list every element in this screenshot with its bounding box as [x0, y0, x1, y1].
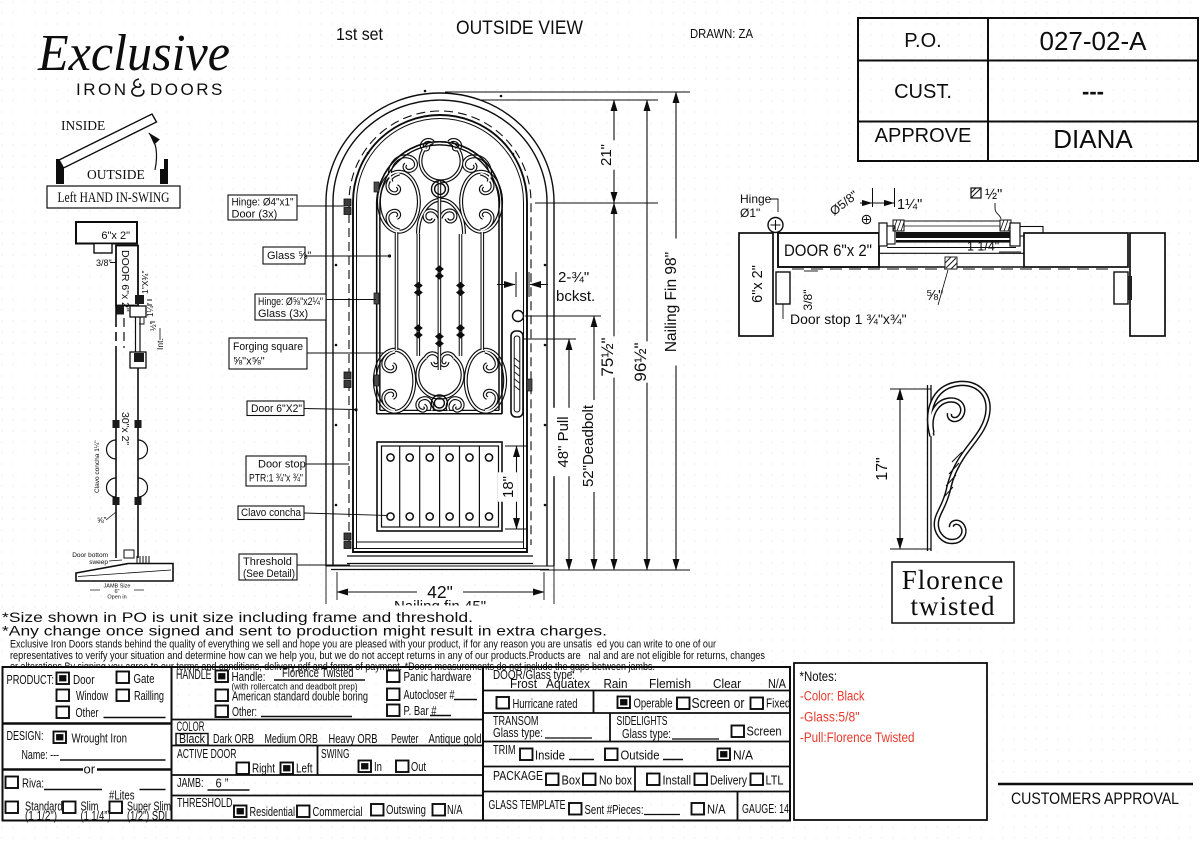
svg-text:Install: Install [663, 774, 692, 788]
svg-text:---: --- [1082, 79, 1104, 104]
svg-text:twisted: twisted [911, 591, 996, 621]
svg-text:Gate: Gate [134, 671, 155, 686]
svg-text:17": 17" [874, 457, 891, 480]
svg-text:INSIDE: INSIDE [61, 118, 105, 133]
svg-text:DOORS: DOORS [150, 80, 225, 99]
svg-text:HANDLE: HANDLE [176, 667, 212, 682]
svg-text:Hurricane rated: Hurricane rated [513, 697, 578, 711]
svg-text:Hinge: Hinge [740, 192, 772, 206]
svg-text:⅝": ⅝" [97, 516, 107, 525]
svg-text:Door stop: Door stop [258, 459, 306, 471]
svg-text:Threshold: Threshold [243, 556, 292, 568]
svg-text:representatives to verify your: representatives to verify your situation… [10, 650, 765, 662]
svg-text:-Glass:5/8": -Glass:5/8" [800, 710, 860, 725]
svg-text:PACKAGE: PACKAGE [493, 769, 543, 783]
svg-text:No box: No box [599, 774, 633, 788]
svg-text:(1 1/4”): (1 1/4”) [81, 808, 111, 823]
svg-text:THRESHOLD: THRESHOLD [177, 795, 233, 810]
svg-text:Door (3x): Door (3x) [232, 209, 278, 221]
svg-text:Door 6"X2": Door 6"X2" [251, 403, 302, 415]
svg-text:N/A: N/A [733, 749, 754, 763]
svg-text:Hinge: Ø4"x1": Hinge: Ø4"x1" [232, 197, 294, 209]
svg-text:Box: Box [562, 774, 582, 788]
svg-text:Heavy ORB: Heavy ORB [329, 732, 378, 746]
svg-text:SIDELIGHTS: SIDELIGHTS [617, 714, 668, 728]
svg-text:TRIM: TRIM [493, 743, 516, 757]
svg-text:Sent #Pieces:: Sent #Pieces: [585, 803, 644, 817]
svg-text:3/8": 3/8" [96, 258, 112, 268]
svg-text:Antique gold: Antique gold [429, 732, 482, 746]
svg-text:⅝"x⅝": ⅝"x⅝" [233, 356, 265, 368]
svg-text:Right: Right [252, 761, 275, 776]
svg-text:-Color: Black: -Color: Black [800, 689, 865, 704]
svg-text:Door: Door [73, 672, 95, 687]
svg-text:Commercial: Commercial [313, 804, 363, 819]
svg-text:OUTSIDE VIEW: OUTSIDE VIEW [456, 17, 584, 39]
svg-text:Dark ORB: Dark ORB [213, 732, 254, 746]
svg-text:52"Deadbolt: 52"Deadbolt [580, 404, 597, 487]
svg-text:IRON: IRON [76, 80, 129, 99]
svg-text:Wrought Iron: Wrought Iron [72, 731, 128, 746]
svg-text:Riva:: Riva: [22, 776, 44, 791]
svg-text:Clavo concha 1¼": Clavo concha 1¼" [94, 440, 101, 493]
svg-text:bckst.: bckst. [556, 288, 595, 305]
svg-text:Black: Black [179, 732, 206, 746]
svg-text:21": 21" [598, 144, 615, 166]
svg-text:½": ½" [149, 321, 158, 331]
svg-text:(See Detail): (See Detail) [243, 568, 295, 580]
svg-text:Nailing Fin 98": Nailing Fin 98" [663, 252, 680, 352]
svg-text:ACTIVE DOOR: ACTIVE DOOR [177, 746, 237, 761]
svg-text:DOOR 6"x 2": DOOR 6"x 2" [119, 250, 131, 312]
svg-text:CUST.: CUST. [894, 81, 952, 103]
svg-text:75½": 75½" [598, 337, 617, 376]
svg-text:Glass ⅝": Glass ⅝" [267, 250, 311, 262]
svg-text:DESIGN:: DESIGN: [7, 728, 44, 743]
svg-text:6"x 2": 6"x 2" [101, 230, 130, 242]
svg-text:Ø1": Ø1" [740, 206, 760, 220]
svg-text:1"X¾": 1"X¾" [140, 270, 150, 294]
svg-text:48" Pull: 48" Pull [555, 416, 572, 467]
svg-text:Other: Other [76, 705, 99, 720]
svg-text:GAUGE: 14: GAUGE: 14 [742, 802, 789, 816]
svg-text:CUSTOMERS APPROVAL: CUSTOMERS APPROVAL [1011, 790, 1179, 808]
svg-text:Delivery: Delivery [710, 774, 748, 788]
svg-text:Name: ---: Name: --- [22, 747, 60, 762]
svg-text:American standard double borin: American standard double boring [232, 690, 368, 704]
svg-text:Window: Window [76, 688, 108, 703]
svg-text:SWING: SWING [321, 746, 350, 761]
svg-text:DIANA: DIANA [1053, 124, 1133, 154]
svg-text:APPROVE: APPROVE [875, 125, 972, 147]
svg-text:OUTSIDE: OUTSIDE [87, 167, 145, 182]
svg-text:(1 1/2”): (1 1/2”) [25, 808, 57, 823]
svg-text:N/A: N/A [768, 677, 787, 691]
svg-text:2-¾": 2-¾" [558, 269, 589, 286]
svg-text:Railling: Railling [134, 688, 164, 703]
svg-text:Door stop 1 ¾"x¾": Door stop 1 ¾"x¾" [790, 311, 907, 327]
svg-text:Hinge: Ø⅝"x2¼": Hinge: Ø⅝"x2¼" [258, 296, 323, 308]
svg-text:Medium ORB: Medium ORB [265, 732, 319, 746]
svg-text:Autocloser #: Autocloser # [404, 688, 455, 702]
svg-text:sweep: sweep [89, 559, 108, 566]
svg-text:Operable: Operable [634, 697, 673, 711]
svg-text:Inside: Inside [535, 749, 565, 763]
svg-text:LTL: LTL [766, 774, 784, 788]
svg-text:*Any change once signed and se: *Any change once signed and sent to prod… [2, 623, 607, 639]
svg-text:Screen: Screen [747, 725, 782, 739]
svg-text:Rain: Rain [604, 677, 628, 691]
svg-text:027-02-A: 027-02-A [1040, 26, 1148, 56]
svg-text:1 1/4": 1 1/4" [967, 240, 999, 254]
svg-text:Forging square: Forging square [233, 341, 303, 353]
svg-text:Other:: Other: [232, 705, 257, 719]
svg-text:Pewter: Pewter [391, 732, 419, 746]
svg-text:96½": 96½" [631, 342, 650, 381]
svg-text:*Notes:: *Notes: [800, 669, 838, 684]
svg-text:Outside: Outside [621, 749, 660, 763]
svg-text:GLASS TEMPLATE: GLASS TEMPLATE [489, 798, 566, 812]
svg-text:Door bottom: Door bottom [72, 552, 108, 559]
svg-text:Frost: Frost [510, 677, 537, 691]
svg-text:JAMB:: JAMB: [177, 775, 204, 790]
svg-text:Aquatex: Aquatex [546, 677, 591, 691]
svg-text:Panic hardware: Panic hardware [404, 670, 472, 684]
svg-text:1¼": 1¼" [897, 197, 922, 213]
svg-text:P.O.: P.O. [904, 30, 941, 52]
svg-text:Outswing: Outswing [386, 802, 426, 817]
svg-text:Left HAND IN-SWING: Left HAND IN-SWING [58, 190, 170, 206]
svg-text:PRODUCT:: PRODUCT: [7, 672, 55, 687]
svg-text:Glass (3x): Glass (3x) [258, 308, 308, 320]
svg-text:Exclusive: Exclusive [37, 25, 230, 82]
svg-text:Residential: Residential [250, 804, 296, 819]
svg-text:or: or [84, 762, 96, 777]
svg-text:N/A: N/A [707, 803, 726, 817]
svg-text:Florence Twisted: Florence Twisted [282, 666, 354, 680]
svg-text:Exclusive Iron Doors stands be: Exclusive Iron Doors stands behind the q… [10, 639, 716, 651]
svg-text:Clear: Clear [713, 677, 741, 691]
svg-text:Flemish: Flemish [649, 677, 691, 691]
svg-text:DRAWN: ZA: DRAWN: ZA [690, 26, 753, 41]
svg-text:Screen or: Screen or [692, 695, 745, 712]
svg-text:Glass type:: Glass type: [622, 727, 671, 741]
svg-text:30"x 2": 30"x 2" [119, 412, 131, 445]
svg-text:DOOR 6"x 2": DOOR 6"x 2" [784, 242, 872, 260]
svg-text:-Pull:Florence Twisted: -Pull:Florence Twisted [800, 730, 915, 745]
svg-text:Open in: Open in [107, 595, 126, 601]
svg-text:N/A: N/A [447, 802, 463, 817]
svg-text:Fixed: Fixed [766, 697, 791, 711]
svg-text:(1/2”) SDL: (1/2”) SDL [127, 808, 170, 823]
svg-text:½": ½" [985, 187, 1002, 203]
svg-text:Clavo concha: Clavo concha [241, 507, 302, 519]
svg-text:Left: Left [296, 761, 313, 776]
svg-text:Out: Out [411, 759, 426, 774]
svg-text:6 ”: 6 ” [216, 776, 229, 791]
svg-text:18": 18" [500, 476, 517, 498]
svg-text:3/8": 3/8" [801, 290, 815, 311]
svg-text:6"x 2": 6"x 2" [750, 265, 766, 303]
svg-text:In: In [374, 759, 382, 774]
svg-text:1st set: 1st set [336, 24, 383, 44]
svg-text:PTR:1 ¾"x ¾": PTR:1 ¾"x ¾" [249, 473, 303, 485]
svg-text:Glass type:: Glass type: [493, 726, 543, 740]
